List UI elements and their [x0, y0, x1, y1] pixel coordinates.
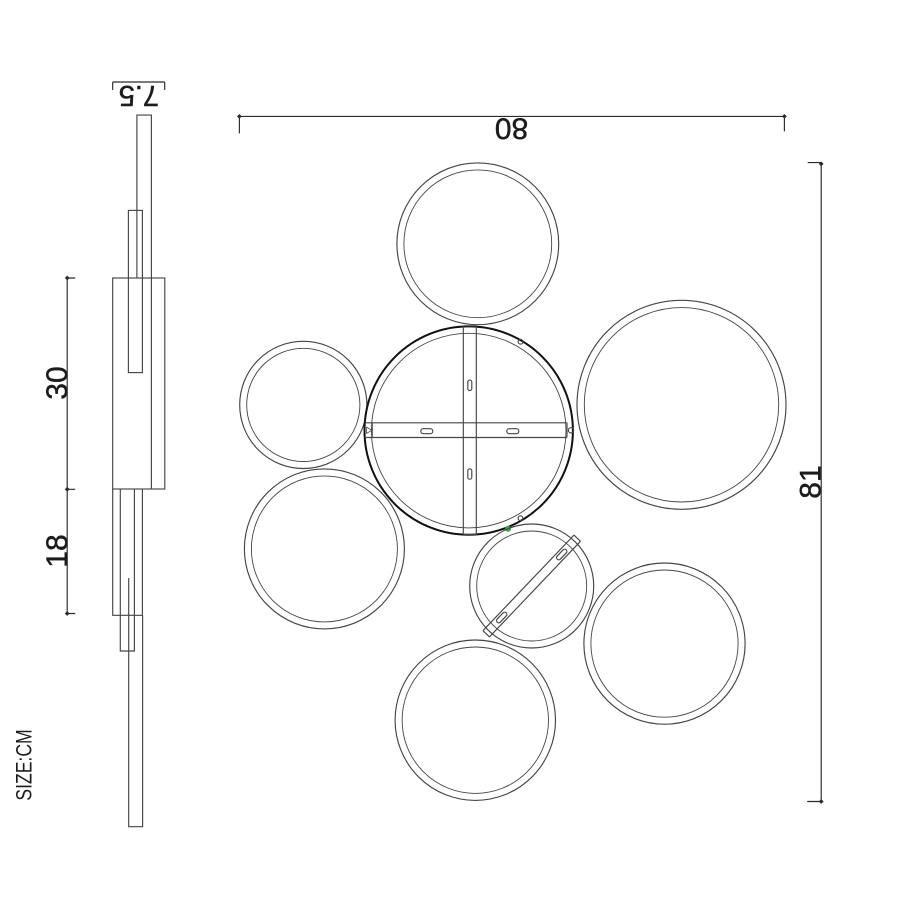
- svg-text:SIZE:CM: SIZE:CM: [13, 729, 37, 800]
- svg-text:81: 81: [795, 465, 828, 498]
- svg-text:80: 80: [495, 112, 528, 145]
- svg-text:7.5: 7.5: [119, 79, 159, 111]
- svg-text:18: 18: [41, 534, 74, 567]
- svg-text:30: 30: [41, 366, 74, 399]
